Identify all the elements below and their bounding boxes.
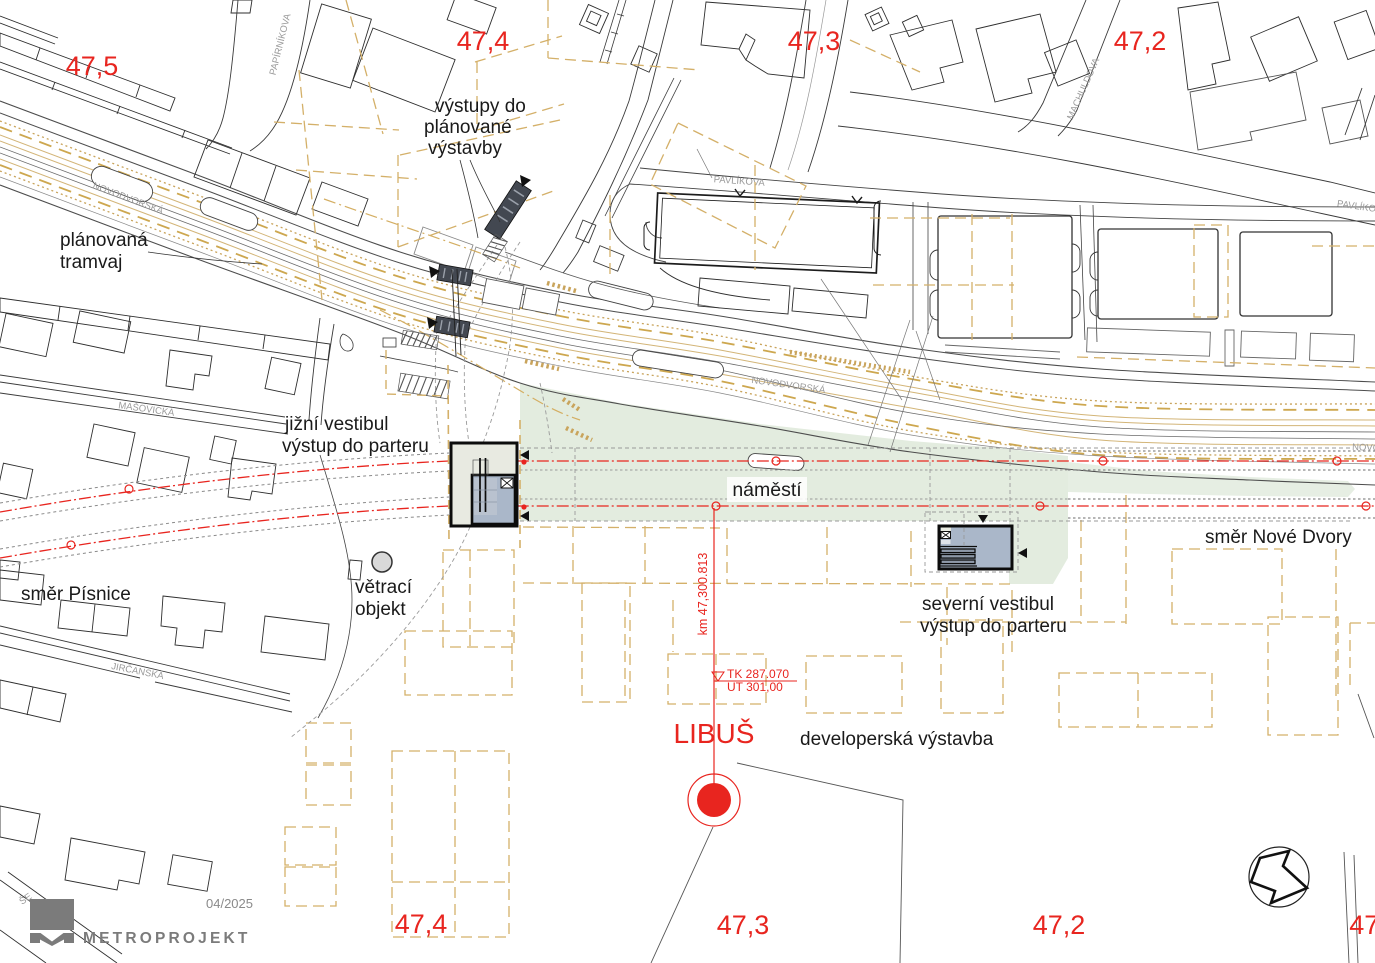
- svg-text:směr Nové Dvory: směr Nové Dvory: [1205, 527, 1352, 548]
- svg-text:severní vestibul: severní vestibul: [922, 594, 1054, 615]
- svg-text:47,5: 47,5: [66, 51, 119, 81]
- svg-text:jižní vestibul: jižní vestibul: [284, 414, 389, 435]
- svg-text:plánovaná: plánovaná: [60, 230, 148, 251]
- svg-text:plánované: plánované: [424, 117, 512, 138]
- svg-text:developerská výstavba: developerská výstavba: [800, 729, 994, 750]
- svg-text:větrací: větrací: [355, 577, 413, 598]
- svg-text:TK 287.070: TK 287.070: [727, 667, 789, 681]
- svg-text:výstup do parteru: výstup do parteru: [282, 436, 429, 457]
- svg-text:výstup do parteru: výstup do parteru: [920, 616, 1067, 637]
- svg-text:NOVODV: NOVODV: [1352, 442, 1375, 454]
- svg-text:UT 301,00: UT 301,00: [727, 680, 783, 694]
- svg-text:METROPROJEKT: METROPROJEKT: [83, 930, 251, 947]
- svg-text:LIBUŠ: LIBUŠ: [674, 718, 755, 749]
- svg-text:výstavby: výstavby: [428, 138, 502, 159]
- svg-text:47,4: 47,4: [395, 909, 448, 939]
- svg-text:47,: 47,: [1349, 910, 1375, 940]
- svg-text:47,2: 47,2: [1033, 910, 1086, 940]
- svg-text:náměstí: náměstí: [732, 479, 802, 501]
- svg-text:04/2025: 04/2025: [206, 896, 253, 911]
- svg-text:47,2: 47,2: [1114, 26, 1167, 56]
- svg-text:směr Písnice: směr Písnice: [21, 584, 131, 605]
- svg-text:tramvaj: tramvaj: [60, 252, 122, 273]
- svg-text:objekt: objekt: [355, 599, 406, 620]
- svg-text:47,3: 47,3: [788, 26, 841, 56]
- svg-text:výstupy do: výstupy do: [435, 96, 526, 117]
- svg-text:47,4: 47,4: [457, 26, 510, 56]
- svg-text:47,3: 47,3: [717, 910, 770, 940]
- svg-text:km 47,300.813: km 47,300.813: [696, 553, 710, 636]
